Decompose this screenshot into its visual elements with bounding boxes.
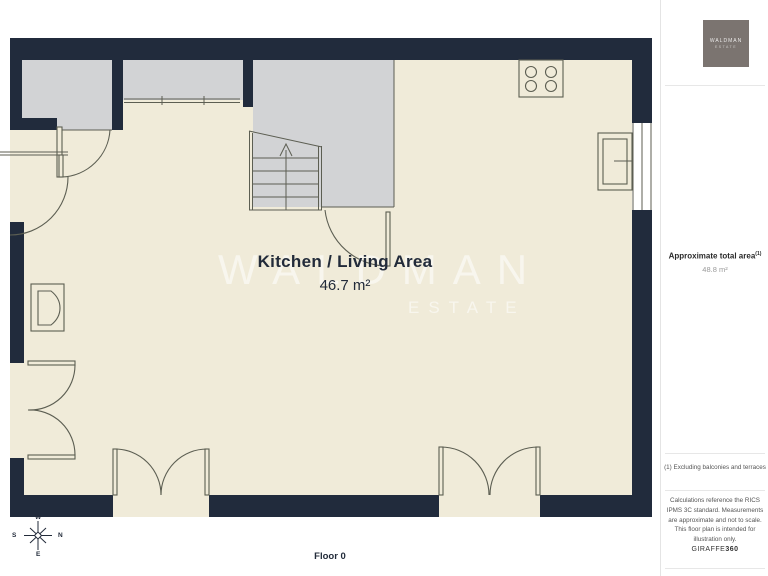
room-label: Kitchen / Living Area 46.7 m² [200, 252, 490, 294]
floor-label: Floor 0 [230, 551, 430, 562]
compass: W N E S [6, 512, 70, 564]
armchair [31, 284, 64, 331]
total-area-superscript: (1) [755, 251, 761, 257]
sidebar-divider [665, 453, 765, 454]
total-area-label-text: Approximate total area [669, 252, 756, 261]
sidebar-divider [665, 85, 765, 86]
giraffe360-brand: GIRAFFE360 [661, 546, 768, 553]
stove-hob [519, 60, 563, 97]
sidebar-divider [665, 568, 765, 569]
total-area-value: 48.8 m² [661, 265, 768, 274]
compass-s: S [12, 532, 16, 539]
compass-n: N [58, 532, 63, 539]
area-footnote: (1) Excluding balconies and terraces [661, 464, 768, 471]
total-area-label: Approximate total area(1) [661, 251, 768, 261]
brand-logo-line2: ESTATE [715, 45, 737, 49]
room-area: 46.7 m² [200, 277, 490, 294]
disclaimer-text: Calculations reference the RICS IPMS 3C … [666, 496, 764, 545]
sidebar-divider [665, 490, 765, 491]
sidebar: WALDMAN ESTATE Approximate total area(1)… [660, 0, 768, 576]
floorplan-viewer: WALDMAN ESTATE Kitchen / Living Area 46.… [0, 0, 768, 576]
brand-logo-line1: WALDMAN [710, 38, 742, 44]
fridge [598, 133, 632, 190]
window-right [632, 123, 652, 210]
giraffe360-name: GIRAFFE [691, 546, 725, 553]
total-area-block: Approximate total area(1) 48.8 m² [661, 251, 768, 274]
brand-logo: WALDMAN ESTATE [703, 20, 749, 67]
compass-e: E [36, 551, 40, 558]
compass-w: W [35, 514, 41, 521]
floorplan-panel: WALDMAN ESTATE Kitchen / Living Area 46.… [0, 0, 660, 576]
giraffe360-suffix: 360 [725, 546, 738, 553]
room-name: Kitchen / Living Area [200, 252, 490, 272]
